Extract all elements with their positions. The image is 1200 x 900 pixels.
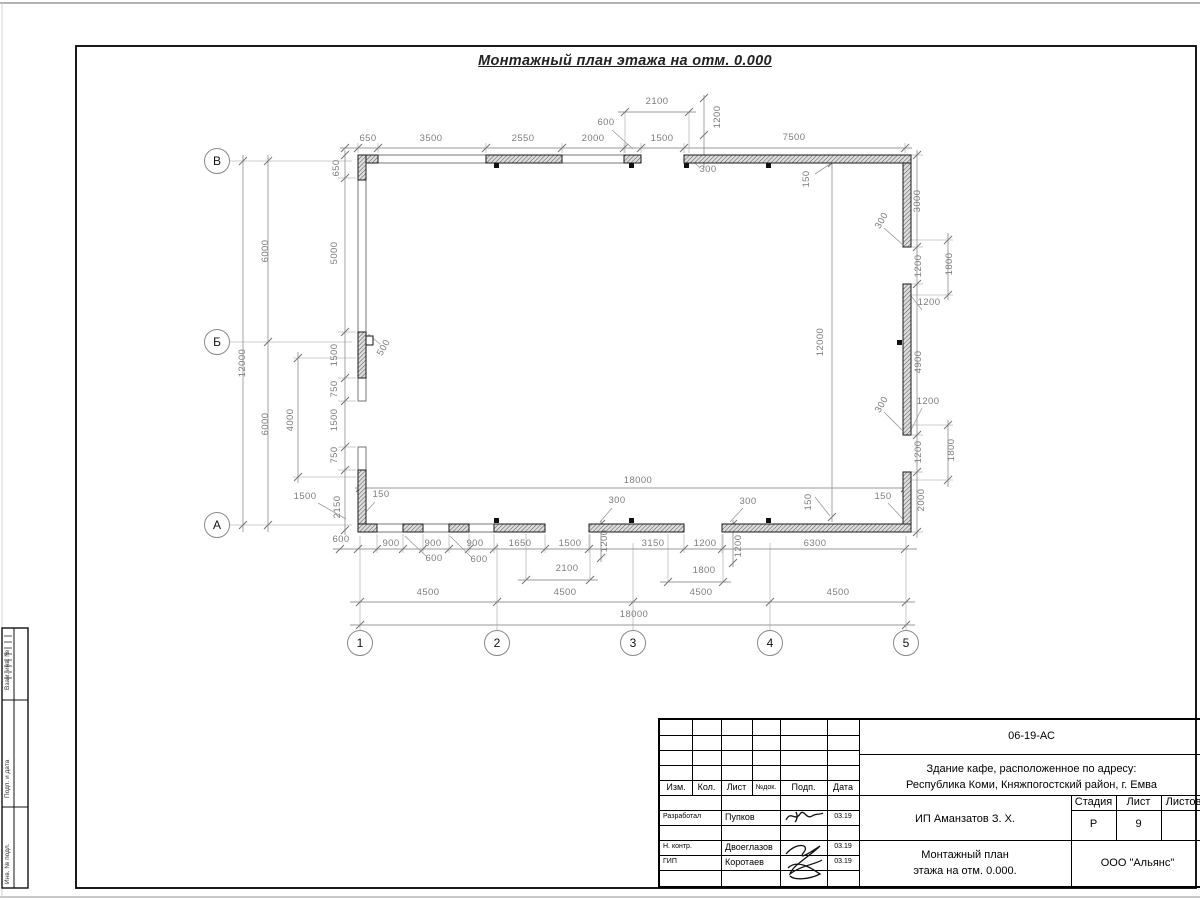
column-marker [629,518,634,523]
window-band [377,524,403,532]
wall-segment [358,524,377,532]
dim-label: 6300 [804,538,827,549]
tb-name-0: Пупков [725,812,779,822]
dim-label: 300 [873,211,891,231]
dim-label: 900 [466,538,483,549]
tb-project-line2: Республика Коми, Княжпогостский район, г… [859,779,1200,791]
dim-label: 150 [874,491,891,502]
tb-col-data: Дата [827,782,859,792]
dim-label: 4500 [690,587,713,598]
wall-segment [358,155,366,180]
leader-line [815,497,830,516]
dim-label: 1500 [329,409,340,432]
signature-1 [782,808,826,825]
dim-label: 18000 [624,475,652,486]
tb-project-line1: Здание кафе, расположенное по адресу: [859,763,1200,775]
axis-bubble-label: 4 [767,636,774,650]
dim-label: 1200 [918,297,941,308]
axis-bubble-label: В [213,154,221,168]
dim-label: 300 [699,164,716,175]
signature-2 [780,840,827,884]
column-marker [766,163,771,168]
tb-col-izm: Изм. [660,782,692,792]
window-band [562,155,624,163]
dim-label: 1200 [917,396,940,407]
axis-bubble-label: 5 [903,636,910,650]
leader-line [612,130,633,149]
dim-label: 500 [375,338,393,358]
pilaster-marker [366,336,373,345]
window-band [469,524,494,532]
tb-role-1: Н. контр. [663,843,720,850]
dim-label: 6000 [260,240,271,263]
dim-label: 4500 [827,587,850,598]
dim-label: 650 [359,133,376,144]
dim-label: 1500 [559,538,582,549]
dim-label: 1200 [712,106,723,129]
wall-segment [684,155,911,163]
axis-bubble-label: 1 [357,636,364,650]
dim-label: 1200 [599,530,610,553]
column-marker [897,340,902,345]
tb-stage-value: Р [1071,818,1116,830]
column-marker [494,163,499,168]
dim-label: 1800 [693,565,716,576]
drawing-title: Монтажный план этажа на отм. 0.000 [430,53,820,69]
tb-date-2: 03.19 [827,858,859,865]
axis-bubble-label: Б [213,335,221,349]
dim-label: 300 [873,395,891,415]
wall-segment [903,472,911,524]
dim-label: 4000 [285,409,296,432]
dim-label: 750 [329,380,340,397]
tb-date-1: 03.19 [827,843,859,850]
dim-label: 1200 [913,255,924,278]
window-band [358,378,366,401]
column-marker [494,518,499,523]
tb-company: ООО "Альянс" [1071,857,1200,869]
tb-role-0: Разработал [663,813,720,820]
wall-segment [903,163,911,247]
dim-label: 150 [372,489,389,500]
leader-line [884,228,902,244]
dim-label: 900 [382,538,399,549]
tb-role-2: ГИП [663,858,720,865]
leader-line [888,503,903,519]
dim-label: 3000 [912,190,923,213]
wall-segment [722,524,911,532]
dim-label: 2100 [646,96,669,107]
tb-client: ИП Аманзатов З. Х. [859,813,1071,825]
axis-bubble-label: 3 [630,636,637,650]
tb-sheet-title-1: Монтажный план [859,849,1071,861]
dim-label: 1800 [944,253,955,276]
drawing-page: 2100600120065035002550200015007500650300… [0,0,1200,900]
dim-label: 18000 [620,609,648,620]
tb-listov-header: Листов [1161,796,1200,808]
dim-label: 1800 [946,439,957,462]
dim-label: 2150 [332,496,343,519]
window-band [358,178,366,332]
dim-label: 2000 [916,489,927,512]
tb-name-2: Коротаев [725,857,779,867]
column-marker [766,518,771,523]
wall-segment [624,155,641,163]
dim-label: 600 [597,117,614,128]
tb-list-header: Лист [1116,796,1161,808]
tb-date-0: 03.19 [827,813,859,820]
dim-label: 4500 [417,587,440,598]
dim-label: 1200 [913,441,924,464]
tb-stage-header: Стадия [1071,796,1116,808]
dim-label: 300 [608,495,625,506]
strip-label-inv: Инв. № подл. [4,844,11,885]
tb-name-1: Двоеглазов [725,842,779,852]
dim-label: 600 [332,534,349,545]
dim-label: 600 [425,553,442,564]
dim-label: 600 [470,554,487,565]
dim-label: 2000 [582,133,605,144]
tb-col-podp: Подп. [780,782,827,792]
dim-label: 300 [739,496,756,507]
dim-label: 1500 [294,491,317,502]
leader-line [600,508,612,522]
wall-segment [403,524,423,532]
tb-doc-number: 06-19-АС [859,730,1200,742]
title-block: Изм. Кол. Лист №док. Подп. Дата Разработ… [658,718,1200,888]
leader-line [815,164,830,174]
axis-bubble-label: А [213,518,221,532]
dim-label: 4900 [913,351,924,374]
wall-segment [358,470,366,524]
axis-bubble-label: 2 [494,636,501,650]
leader-line [884,412,902,430]
dim-label: 1650 [509,538,532,549]
wall-segment [486,155,562,163]
dim-label: 2100 [556,563,579,574]
dim-label: 3150 [642,538,665,549]
window-band [423,524,449,532]
tb-sheet-number: 9 [1116,818,1161,830]
dim-label: 5000 [329,242,340,265]
dim-label: 3500 [420,133,443,144]
dim-label: 12000 [815,328,826,356]
dim-label: 2550 [512,133,535,144]
strip-label-podp: Подп. и дата [4,760,11,798]
dim-label: 650 [331,159,342,176]
column-marker [629,163,634,168]
dim-label: 750 [329,446,340,463]
wall-segment [358,332,366,378]
dim-label: 150 [803,493,814,510]
dim-label: 150 [801,170,812,187]
wall-segment [903,284,911,435]
dim-label: 900 [424,538,441,549]
strip-label-vzam: Взам. инв. № [4,650,11,690]
dim-label: 1200 [694,538,717,549]
dim-label: 4500 [554,587,577,598]
tb-sheet-title-2: этажа на отм. 0.000. [859,865,1071,877]
tb-col-list: Лист [721,782,752,792]
wall-segment [494,524,545,532]
dim-label: 7500 [783,132,806,143]
dim-label: 12000 [237,349,248,377]
dim-label: 1500 [651,133,674,144]
tb-col-ndok: №док. [752,784,780,791]
dim-label: 1200 [733,535,744,558]
window-band [358,447,366,470]
dim-label: 1500 [329,344,340,367]
tb-col-kol: Кол. [692,782,721,792]
dim-label: 6000 [260,413,271,436]
column-marker [684,163,689,168]
window-band [378,155,486,163]
wall-segment [449,524,469,532]
